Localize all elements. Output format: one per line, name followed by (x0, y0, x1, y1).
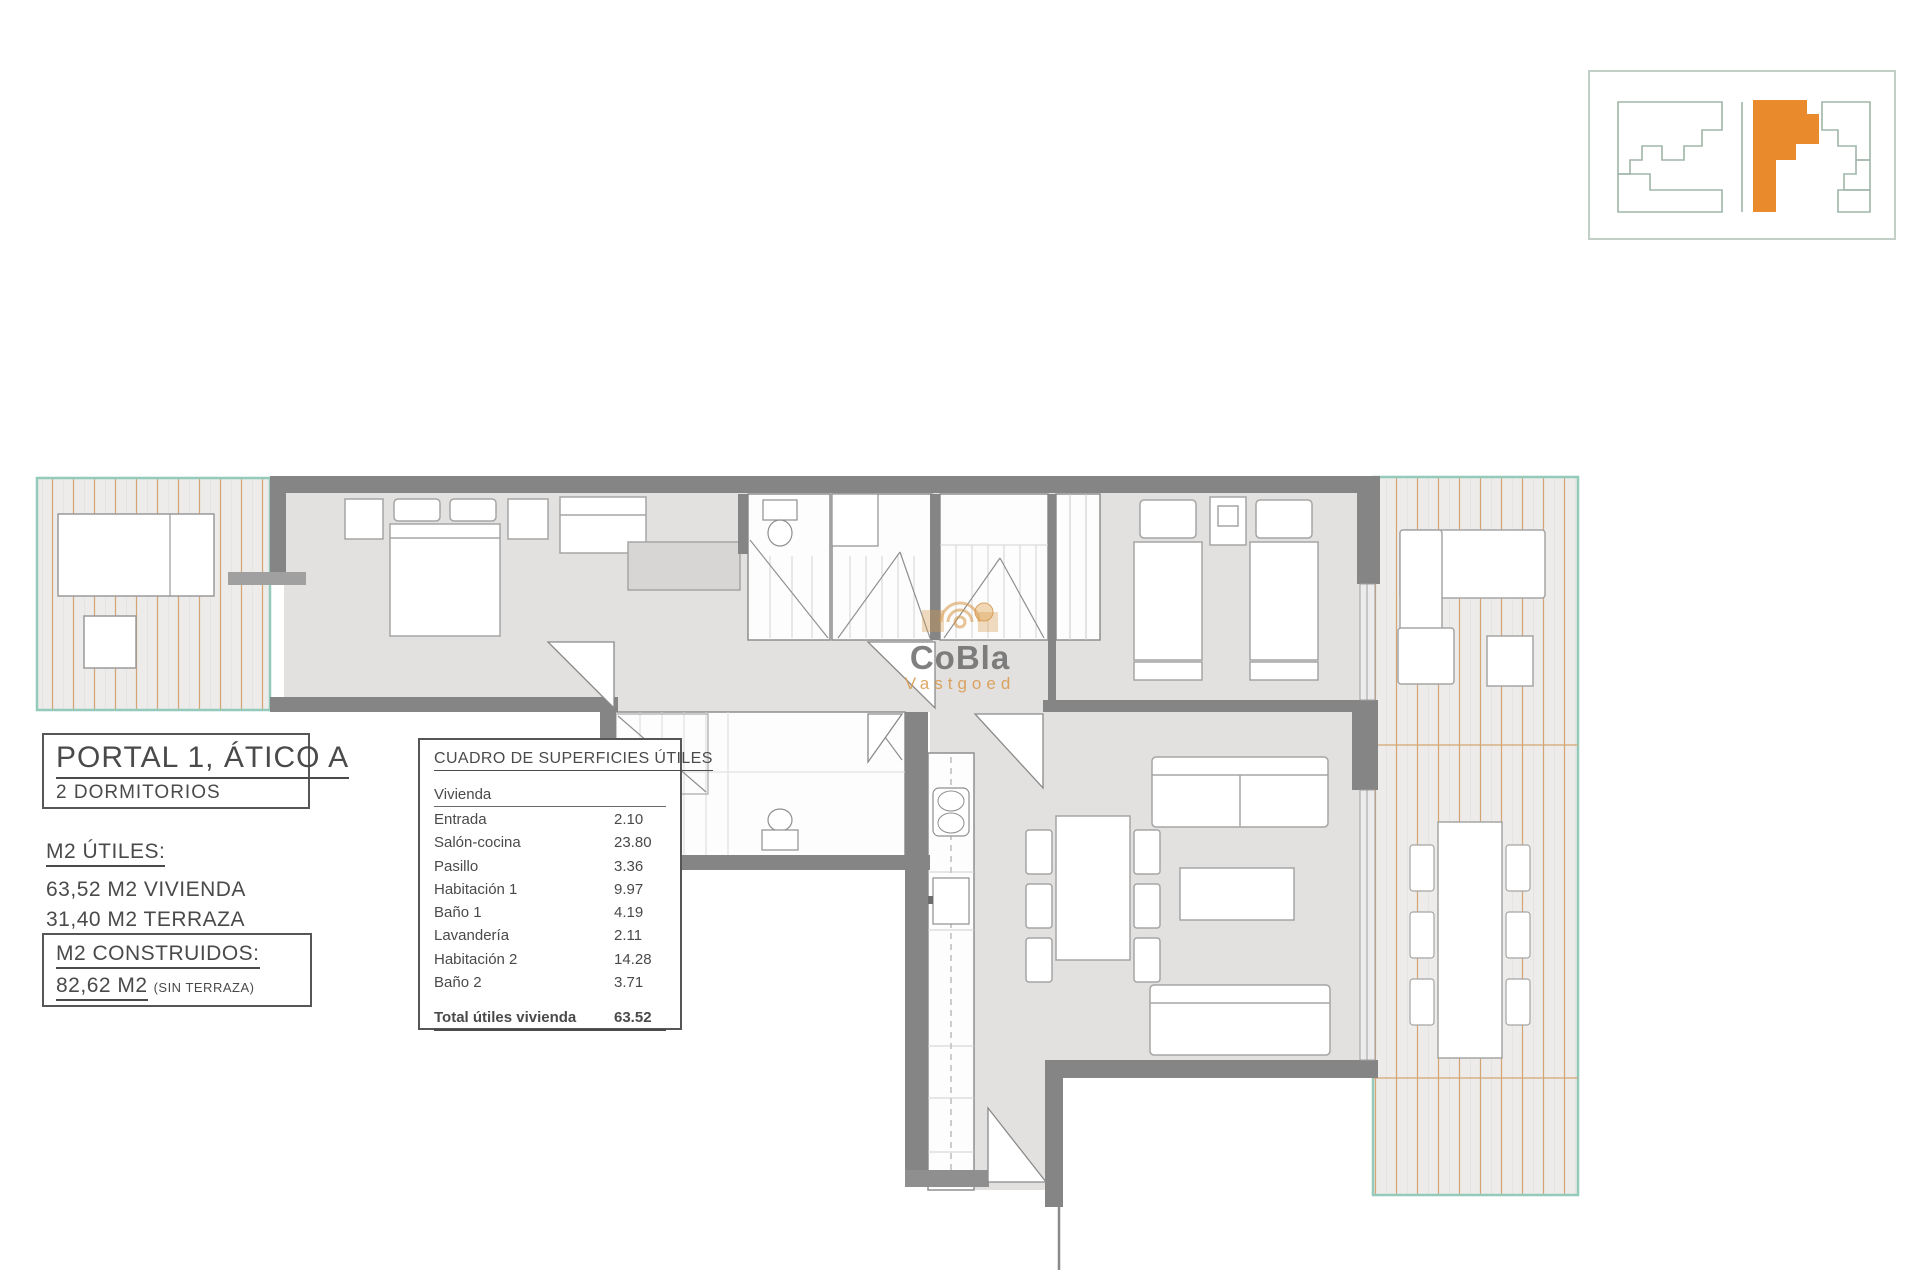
key-plan (1588, 70, 1896, 240)
side-table (84, 616, 136, 668)
kitchen-counter (920, 753, 974, 1190)
right-terrace (1373, 477, 1578, 1195)
kitchen-sink (933, 788, 969, 836)
nightstand (345, 499, 383, 539)
chair (1134, 938, 1160, 982)
highlighted-unit (1753, 100, 1819, 212)
pillow (394, 499, 440, 521)
built-area-note: (SIN TERRAZA) (154, 980, 255, 995)
table-row: Habitación 214.28 (434, 949, 666, 970)
outdoor-dining-table (1438, 822, 1502, 1058)
useful-area-block: M2 ÚTILES: 63,52 M2 VIVIENDA 31,40 M2 TE… (46, 840, 246, 936)
sink (975, 603, 993, 621)
windows (1360, 584, 1375, 1060)
toilet (763, 500, 797, 520)
sun-lounger (58, 514, 214, 596)
plan-title-box: PORTAL 1, ÁTICO A 2 DORMITORIOS (42, 733, 310, 809)
built-area-heading: M2 CONSTRUIDOS: (56, 942, 260, 969)
table-row: Baño 14.19 (434, 902, 666, 923)
chair (1026, 830, 1052, 874)
wardrobe-block (628, 542, 740, 590)
surface-table-group: Vivienda (434, 786, 666, 807)
table-row: Salón-cocina23.80 (434, 832, 666, 853)
pillow (1256, 500, 1312, 538)
built-area-value: 82,62 M2 (56, 974, 148, 1001)
key-plan-drawing (1590, 72, 1894, 238)
outdoor-armchair (1398, 628, 1454, 684)
stair-room (832, 494, 932, 640)
left-terrace (37, 478, 270, 710)
bathroom-2 (940, 494, 1048, 640)
coffee-table (1180, 868, 1294, 920)
wardrobe (1056, 494, 1100, 640)
table-row: Entrada2.10 (434, 809, 666, 830)
nightstand (508, 499, 548, 539)
hob (933, 878, 969, 924)
chair (1134, 884, 1160, 928)
table-total-row: Total útiles vivienda63.52 (434, 1009, 666, 1031)
bed-bench (1134, 662, 1202, 680)
chair (1026, 884, 1052, 928)
single-bed (1250, 542, 1318, 660)
table-row: Lavandería2.11 (434, 925, 666, 946)
useful-area-heading: M2 ÚTILES: (46, 840, 165, 867)
sofa (1150, 985, 1330, 1055)
table-row: Pasillo3.36 (434, 856, 666, 877)
plan-subtitle: 2 DORMITORIOS (56, 782, 298, 804)
built-area-box: M2 CONSTRUIDOS: 82,62 M2(SIN TERRAZA) (42, 933, 312, 1007)
surface-table: CUADRO DE SUPERFICIES ÚTILES Vivienda En… (418, 738, 682, 1030)
pillow (450, 499, 496, 521)
toilet (768, 809, 792, 831)
table-row: Habitación 19.97 (434, 879, 666, 900)
outdoor-coffee-table (1487, 636, 1533, 686)
pillow (1140, 500, 1196, 538)
lamp (1218, 506, 1238, 526)
useful-area-vivienda: 63,52 M2 VIVIENDA (46, 875, 246, 905)
dining-table (1056, 816, 1130, 960)
single-bed (1134, 542, 1202, 660)
closet (832, 494, 878, 546)
bed-bench (1250, 662, 1318, 680)
double-bed (390, 524, 500, 636)
surface-table-title: CUADRO DE SUPERFICIES ÚTILES (434, 750, 713, 771)
plan-title: PORTAL 1, ÁTICO A (56, 741, 349, 779)
bathroom-1 (748, 494, 830, 640)
chair (1134, 830, 1160, 874)
chair (1026, 938, 1052, 982)
table-row: Baño 23.71 (434, 972, 666, 993)
useful-area-terraza: 31,40 M2 TERRAZA (46, 905, 246, 935)
